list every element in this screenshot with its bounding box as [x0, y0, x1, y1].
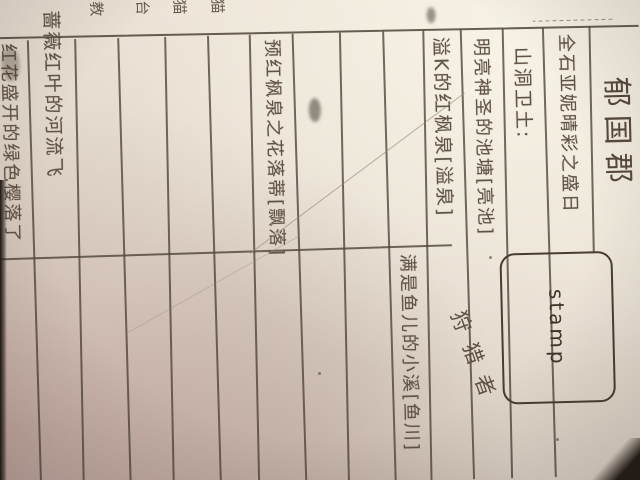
table-row-text: 满是鱼儿的小溪[鱼川]: [395, 254, 426, 453]
table-row-text: 明亮神圣的池塘[亮池]: [469, 38, 500, 237]
row-line: [291, 34, 307, 480]
handwritten-document: 郁国郡 stamp 狩猎者 全石亚妮晴彩之盛日 山洞卫土: 明亮神圣的池塘[亮池…: [0, 0, 640, 480]
photo-of-handwritten-table: 郁国郡 stamp 狩猎者 全石亚妮晴彩之盛日 山洞卫土: 明亮神圣的池塘[亮池…: [0, 0, 640, 480]
row-line: [117, 38, 132, 480]
pencil-smudge: [426, 7, 435, 23]
desk-edge: [0, 180, 7, 480]
table-row-text: 溢K的红枫泉[溢泉]: [428, 37, 459, 218]
margin-note: 教: [86, 1, 107, 18]
column-divider-line: [0, 244, 452, 261]
diagonal-note: 狩猎者: [444, 306, 508, 412]
margin-note: 猫: [169, 0, 190, 16]
row-line: [74, 39, 85, 480]
pencil-smudge: [309, 98, 322, 122]
row-line: [207, 36, 222, 480]
document-title: 郁国郡: [597, 76, 640, 191]
stamp-label: stamp: [545, 289, 571, 367]
table-row-text: 全石亚妮晴彩之盛日: [554, 34, 584, 215]
table-row-text: 山洞卫土:: [509, 47, 538, 140]
margin-note: 台: [132, 0, 153, 17]
dust-speck: [489, 256, 492, 259]
desk-corner: [588, 438, 640, 480]
pencil-smudge: [1, 47, 20, 81]
row-line: [588, 26, 595, 252]
margin-note: 猫: [207, 0, 228, 15]
dust-speck: [318, 372, 321, 375]
stamp-box: stamp: [499, 251, 616, 405]
row-line: [164, 37, 175, 480]
table-row-text: 蔷薇红叶的河流飞: [38, 10, 69, 179]
dust-speck: [556, 438, 559, 441]
margin-rule-line-dashed: [533, 19, 613, 22]
row-line: [339, 32, 350, 480]
